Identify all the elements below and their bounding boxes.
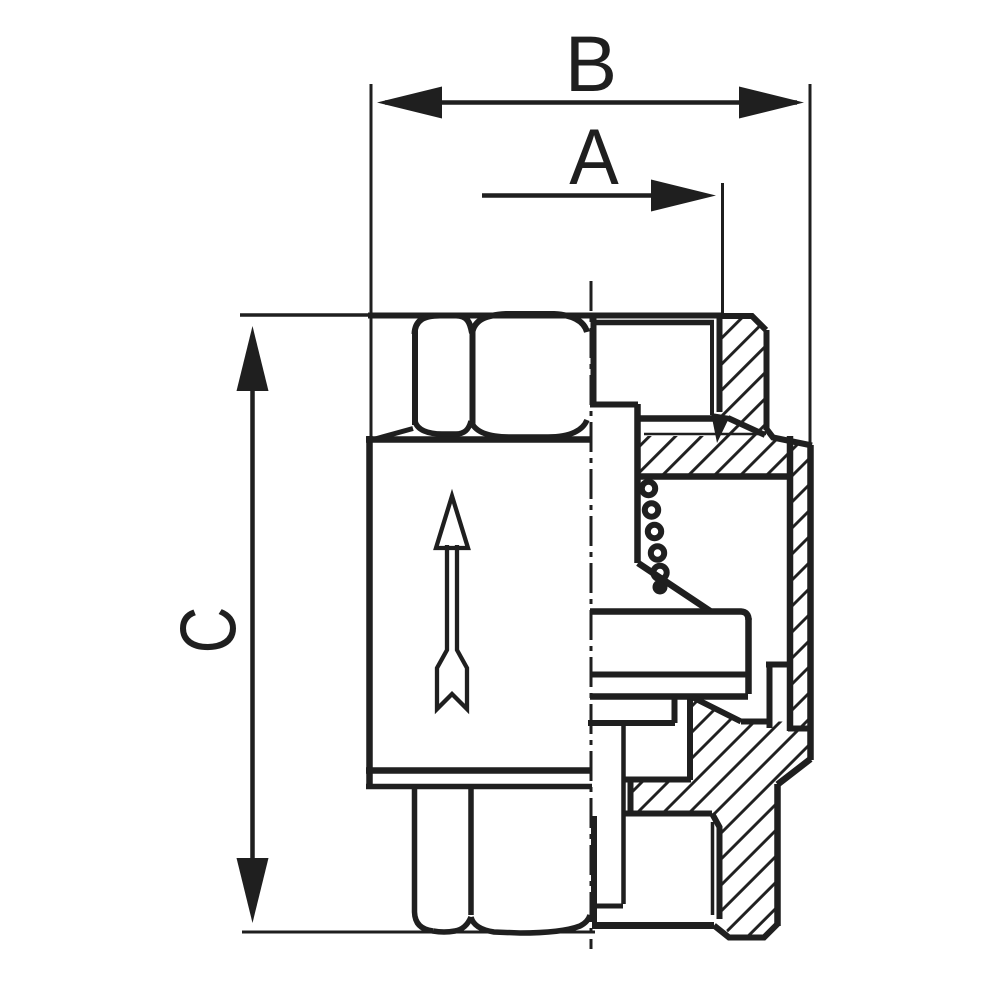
svg-text:C: C bbox=[165, 607, 252, 654]
svg-text:A: A bbox=[569, 114, 619, 202]
svg-text:B: B bbox=[565, 20, 617, 108]
